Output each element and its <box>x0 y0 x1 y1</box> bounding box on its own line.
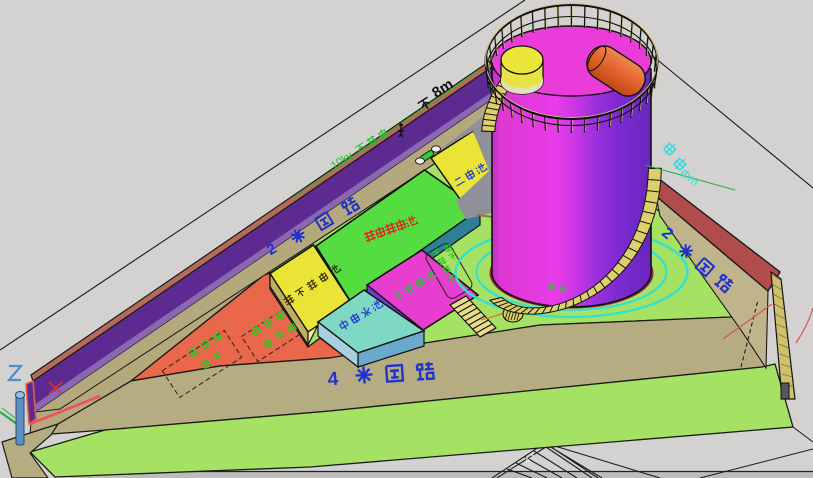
svg-text:4: 4 <box>327 369 339 391</box>
